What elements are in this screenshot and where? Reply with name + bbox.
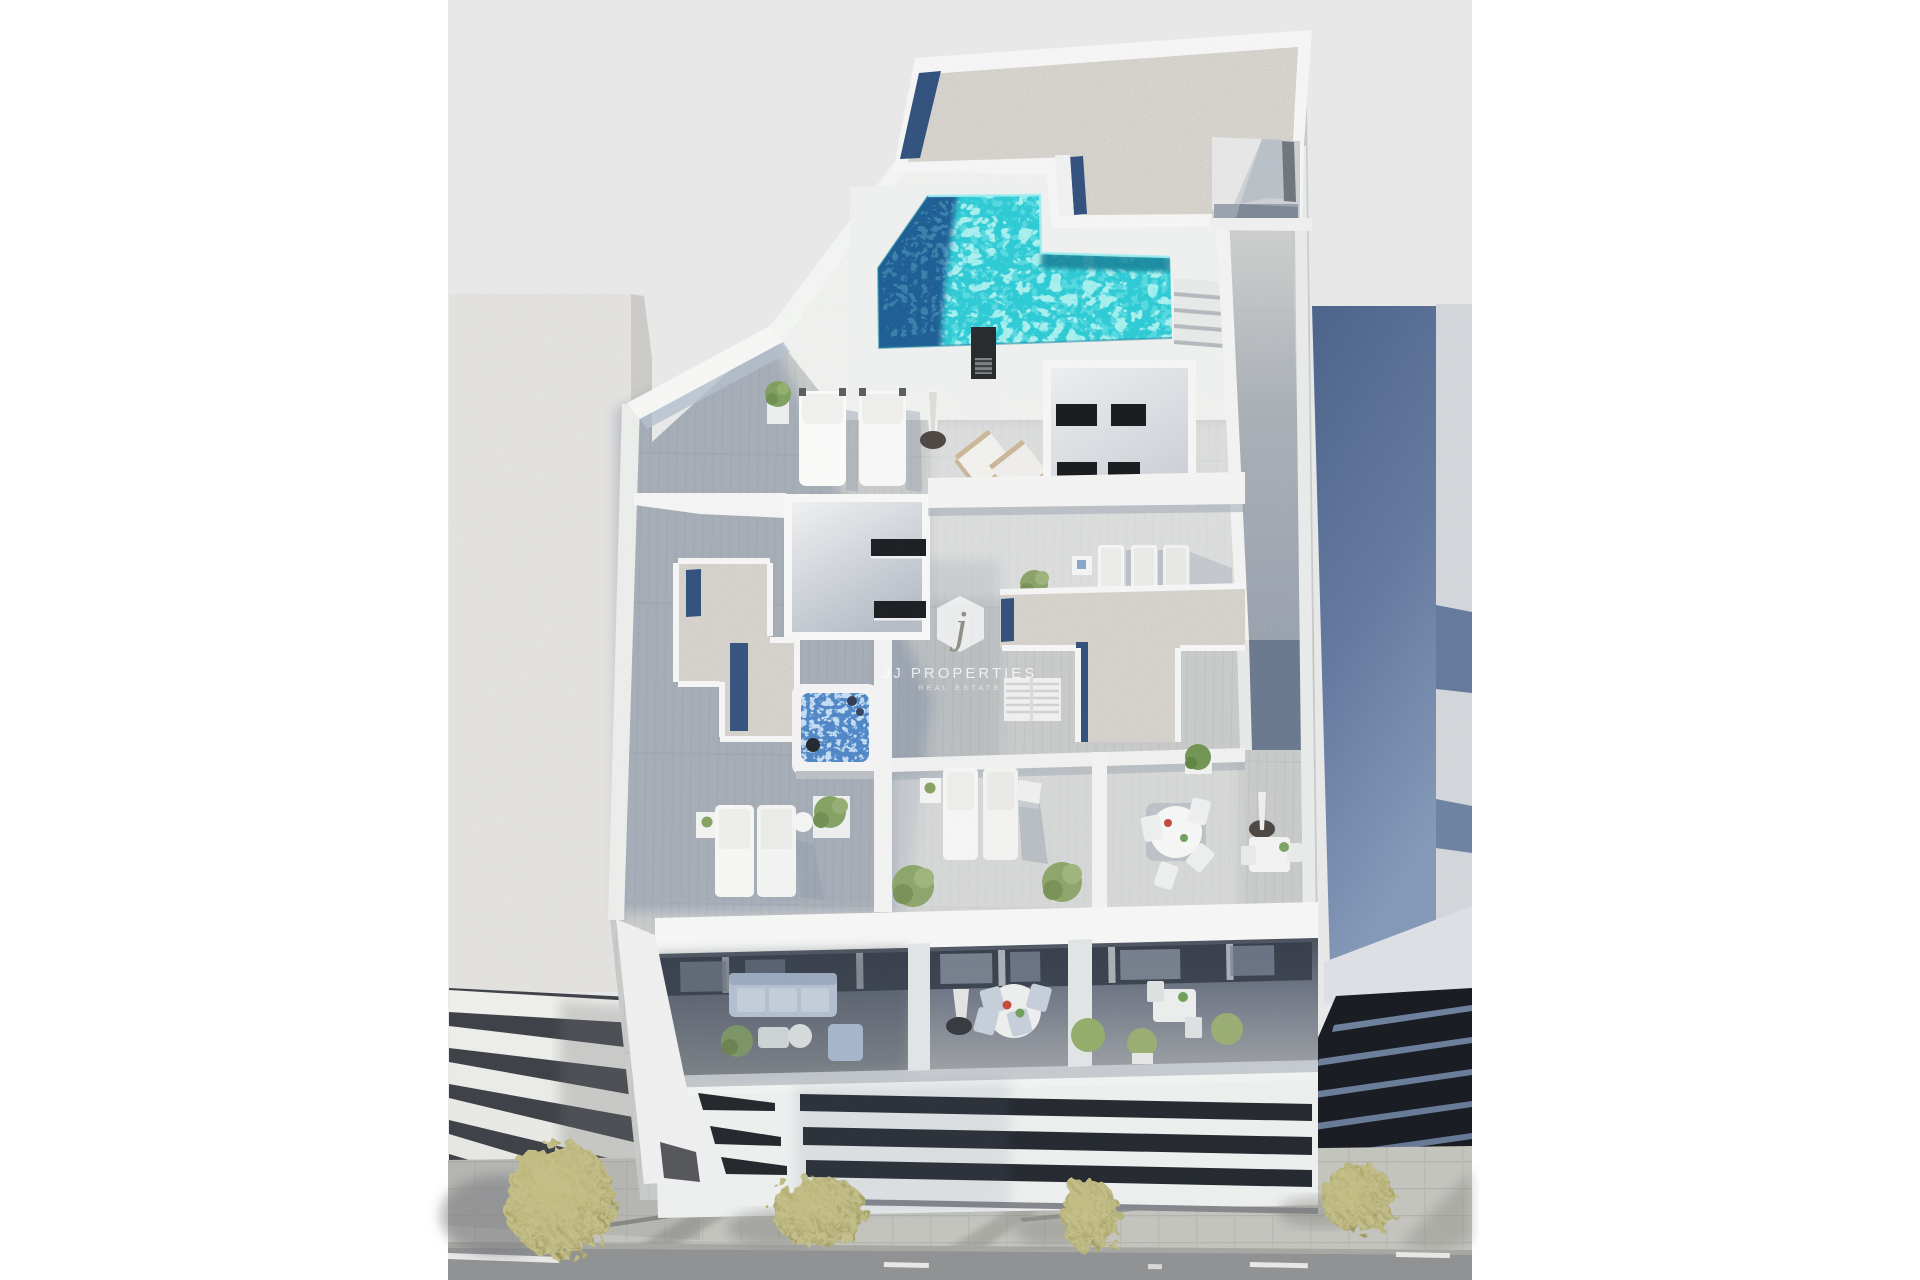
svg-text:REAL ESTATE: REAL ESTATE (918, 685, 1002, 692)
svg-text:JJ PROPERTIES: JJ PROPERTIES (883, 665, 1038, 682)
